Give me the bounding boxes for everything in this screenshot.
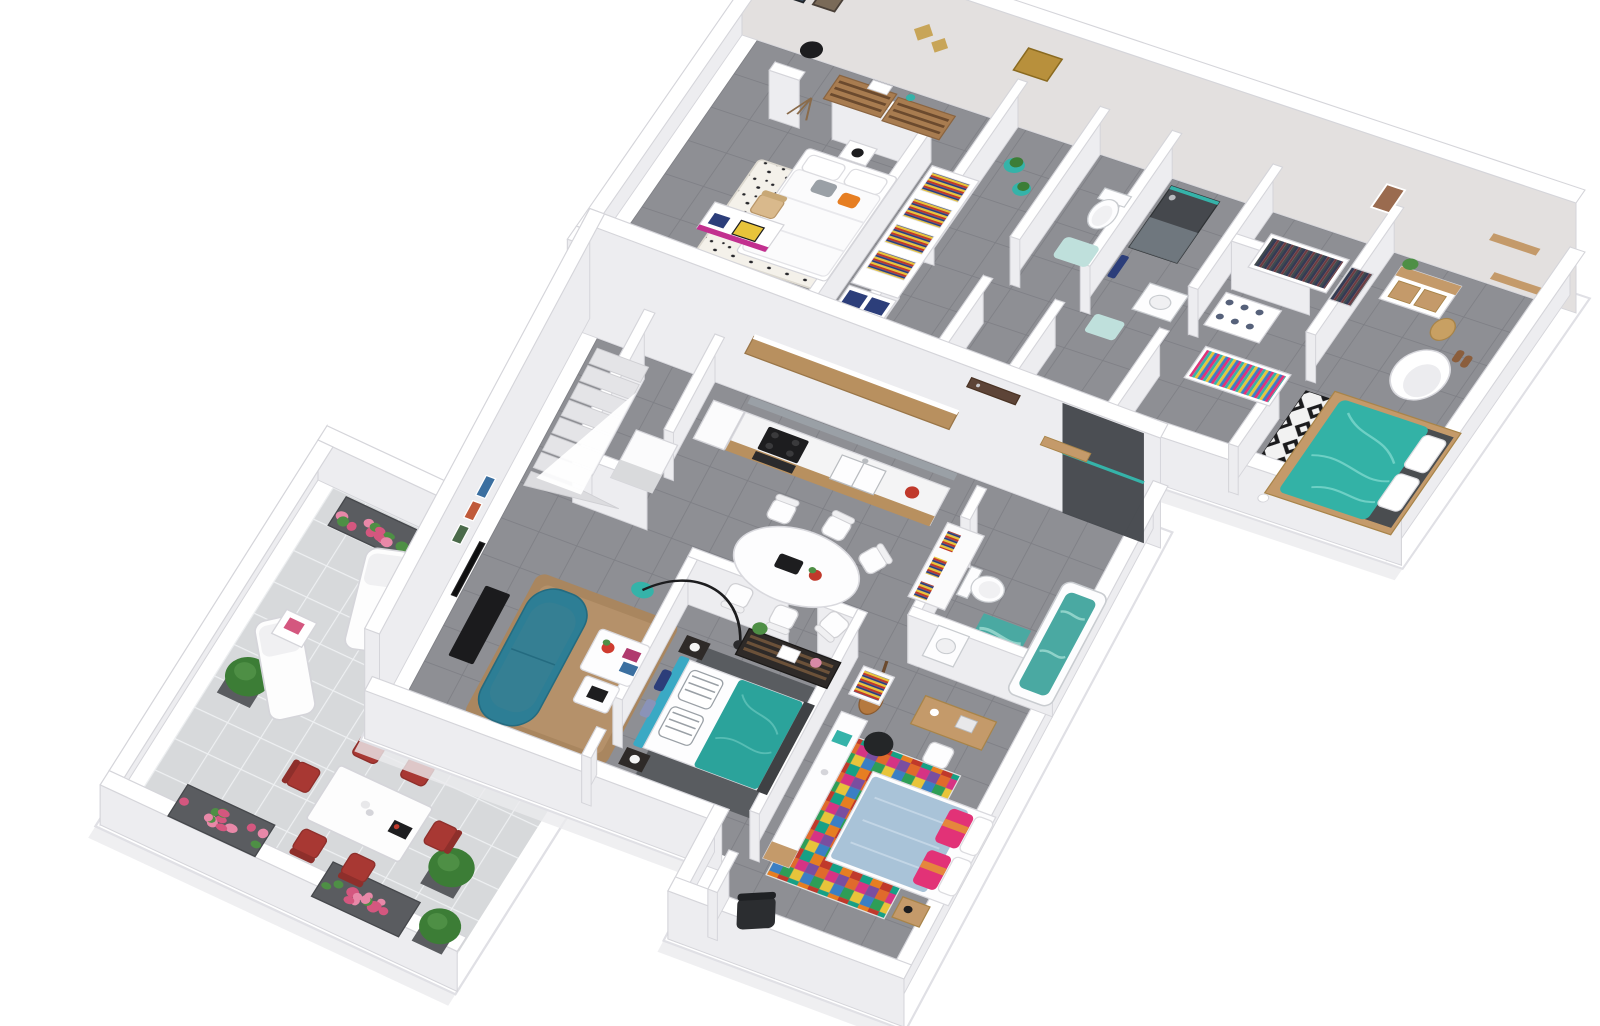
- floor-plan-canvas: [0, 0, 1600, 1026]
- armchair-black: [736, 892, 776, 930]
- armchair-seat: [736, 896, 776, 929]
- floor-plan-render: [0, 0, 1600, 1026]
